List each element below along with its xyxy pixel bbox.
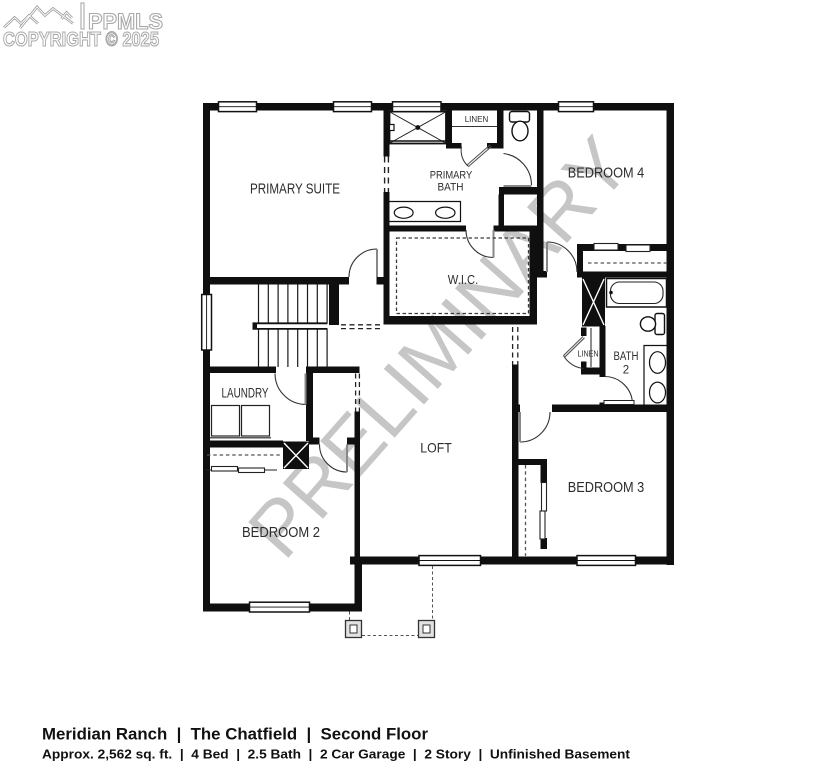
- svg-text:Meridian Ranch | The Chatfie: Meridian Ranch | The Chatfield | Second …: [42, 726, 429, 744]
- svg-text:Approx. 2,562 sq. ft. | 4 Be: Approx. 2,562 sq. ft. | 4 Bed | 2.5 Bath…: [42, 747, 631, 762]
- svg-text:W.I.C.: W.I.C.: [448, 273, 479, 287]
- svg-text:2: 2: [623, 364, 629, 376]
- svg-text:LINEN: LINEN: [578, 350, 599, 359]
- svg-text:BEDROOM 4: BEDROOM 4: [568, 165, 645, 182]
- svg-text:PRIMARY: PRIMARY: [430, 170, 473, 182]
- svg-text:COPYRIGHT © 2025: COPYRIGHT © 2025: [3, 28, 159, 51]
- svg-text:BATH: BATH: [614, 351, 639, 363]
- svg-text:LOFT: LOFT: [420, 441, 452, 456]
- svg-text:BEDROOM 2: BEDROOM 2: [242, 524, 320, 541]
- svg-text:BATH: BATH: [438, 182, 464, 194]
- svg-text:PRIMARY SUITE: PRIMARY SUITE: [250, 181, 340, 198]
- svg-text:BEDROOM 3: BEDROOM 3: [568, 479, 645, 496]
- svg-text:LAUNDRY: LAUNDRY: [222, 384, 269, 400]
- svg-text:LINEN: LINEN: [465, 114, 489, 124]
